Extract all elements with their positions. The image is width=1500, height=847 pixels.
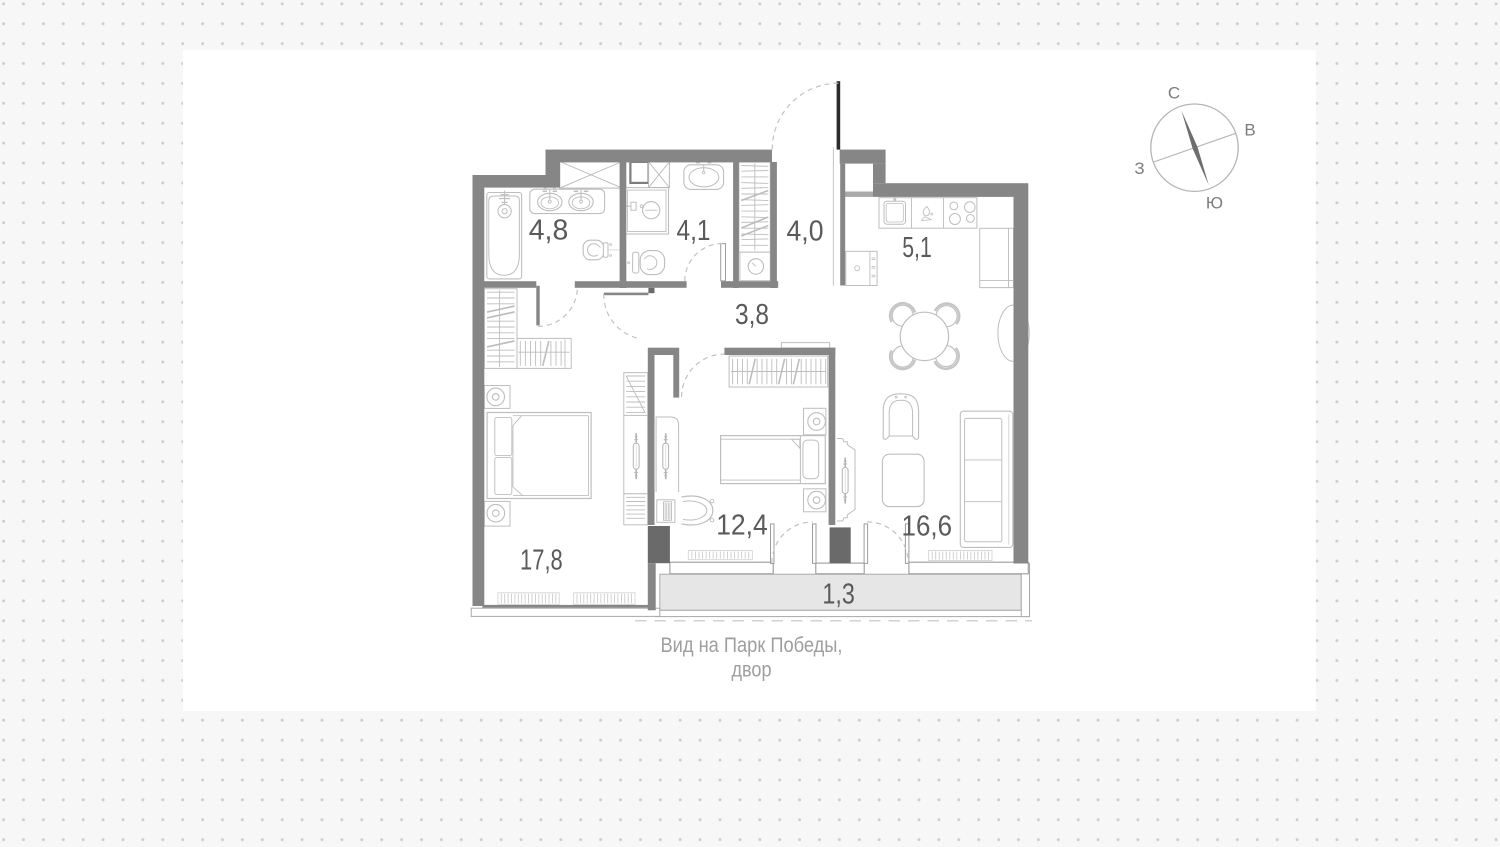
svg-text:4,1: 4,1	[677, 215, 711, 247]
svg-text:3,8: 3,8	[735, 299, 769, 331]
svg-text:5,1: 5,1	[902, 232, 932, 264]
svg-text:12,4: 12,4	[716, 510, 768, 542]
svg-text:В: В	[1244, 121, 1255, 140]
svg-text:17,8: 17,8	[520, 545, 563, 577]
svg-text:4,8: 4,8	[529, 215, 569, 247]
svg-text:двор: двор	[732, 659, 772, 682]
svg-text:Ю: Ю	[1206, 194, 1223, 213]
svg-text:Вид на Парк Победы,: Вид на Парк Победы,	[661, 634, 843, 657]
svg-text:16,6: 16,6	[902, 510, 953, 542]
svg-text:4,0: 4,0	[787, 216, 824, 248]
svg-text:1,3: 1,3	[822, 579, 854, 611]
svg-text:С: С	[1168, 84, 1180, 103]
svg-text:З: З	[1134, 159, 1144, 178]
